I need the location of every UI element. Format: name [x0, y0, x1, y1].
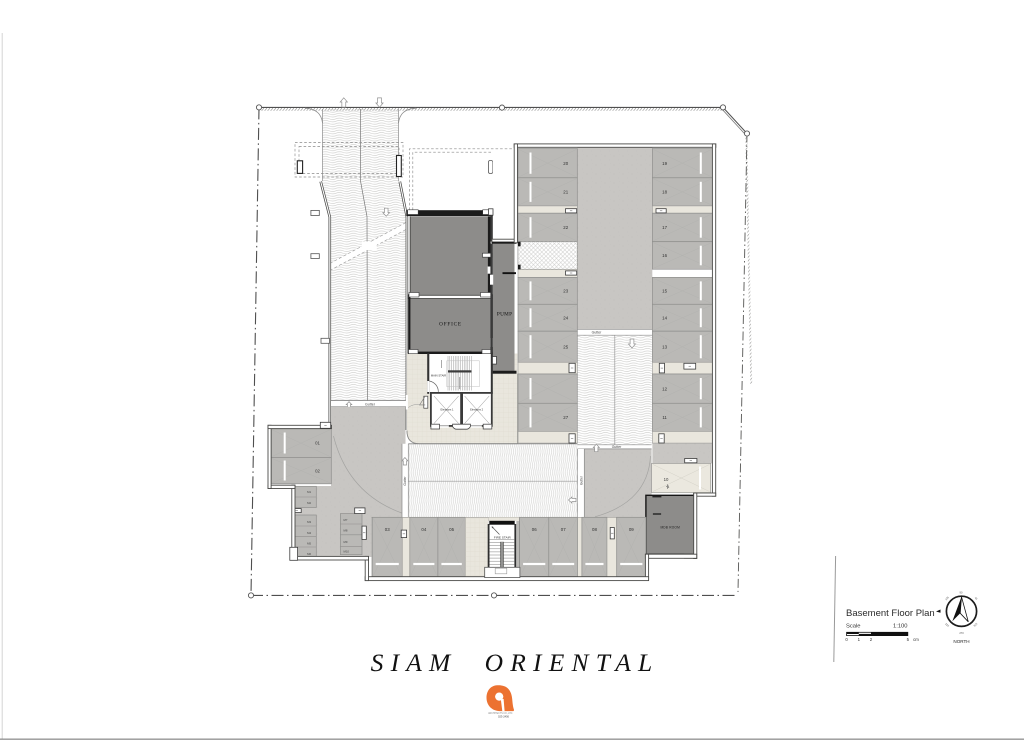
svg-text:14: 14: [662, 315, 667, 320]
svg-text:FIRE STAIR: FIRE STAIR: [494, 535, 512, 539]
svg-text:OFFICE: OFFICE: [439, 322, 462, 328]
svg-text:02: 02: [315, 469, 320, 474]
svg-text:M6: M6: [307, 552, 311, 556]
svg-text:05: 05: [449, 527, 454, 532]
svg-text:13: 13: [662, 344, 667, 349]
svg-text:22: 22: [563, 225, 568, 230]
svg-text:M2: M2: [307, 501, 311, 505]
svg-text:M8: M8: [344, 529, 348, 533]
svg-text:20: 20: [563, 161, 568, 166]
svg-text:M3: M3: [307, 520, 311, 524]
svg-text:Gutter: Gutter: [612, 445, 622, 449]
svg-text:04: 04: [421, 527, 426, 532]
svg-text:SIAM ORIENTAL: SIAM ORIENTAL: [371, 648, 660, 677]
svg-text:18: 18: [662, 189, 667, 194]
svg-text:25: 25: [563, 344, 568, 349]
svg-text:Elevators 1: Elevators 1: [441, 407, 455, 411]
svg-text:17: 17: [662, 225, 667, 230]
svg-text:23: 23: [563, 288, 568, 293]
svg-text:16: 16: [662, 253, 667, 258]
svg-text:Gutter: Gutter: [403, 476, 407, 486]
svg-text:cm: cm: [913, 637, 919, 642]
svg-text:270: 270: [959, 631, 964, 635]
svg-text:15: 15: [662, 288, 667, 293]
svg-text:07: 07: [561, 527, 566, 532]
svg-text:NORTH: NORTH: [953, 639, 969, 644]
svg-text:19: 19: [662, 161, 667, 166]
svg-text:09: 09: [629, 527, 634, 532]
svg-text:06: 06: [532, 527, 537, 532]
svg-text:MDB ROOM: MDB ROOM: [660, 526, 680, 530]
svg-text:Scale: Scale: [846, 624, 861, 630]
svg-text:Gutter: Gutter: [592, 331, 603, 335]
svg-text:10: 10: [664, 477, 669, 482]
svg-text:08: 08: [592, 527, 597, 532]
svg-text:21: 21: [563, 189, 568, 194]
svg-text:M1: M1: [307, 490, 311, 494]
svg-text:12: 12: [662, 386, 667, 391]
svg-text:PUMP: PUMP: [497, 312, 512, 318]
svg-text:MAIN STAIR: MAIN STAIR: [431, 374, 446, 378]
svg-text:M9: M9: [344, 540, 348, 544]
svg-text:03: 03: [385, 527, 390, 532]
svg-text:M7: M7: [344, 518, 348, 522]
svg-text:27: 27: [563, 415, 568, 420]
svg-text:Elevators 2: Elevators 2: [470, 407, 484, 411]
svg-text:01: 01: [315, 441, 320, 446]
svg-text:24: 24: [563, 315, 568, 320]
svg-text:M4: M4: [307, 531, 311, 535]
svg-text:1:100: 1:100: [893, 624, 908, 630]
svg-text:11: 11: [662, 415, 667, 420]
svg-text:M10: M10: [344, 550, 350, 554]
svg-text:M5: M5: [307, 541, 311, 545]
svg-text:023-2456: 023-2456: [498, 715, 510, 719]
svg-text:Gutter: Gutter: [365, 402, 376, 406]
svg-text:Gutter: Gutter: [579, 475, 583, 485]
svg-text:Basement Floor Plan: Basement Floor Plan: [846, 608, 935, 619]
